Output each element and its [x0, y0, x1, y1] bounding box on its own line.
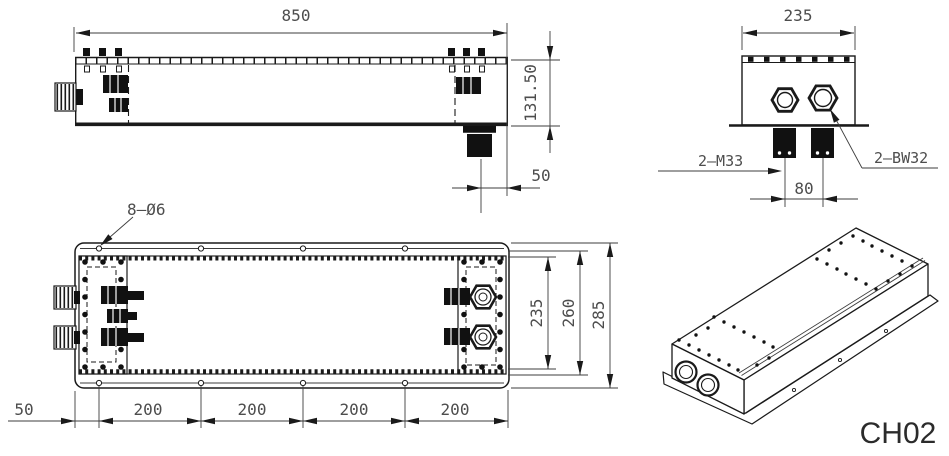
dim-131-50: 131.50 [511, 31, 560, 153]
label-bw32: 2–BW32 [874, 149, 928, 167]
dim-body-width: 260 [559, 299, 578, 328]
dim-pitch-2: 200 [238, 400, 267, 419]
dim-80: 80 [750, 179, 858, 202]
top-clips [83, 48, 485, 72]
dim-side-height: 131.50 [521, 64, 540, 122]
dim-pitch-1: 200 [134, 400, 163, 419]
engineering-drawing-page: 850 131.50 50 [0, 0, 949, 456]
dim-hole-pitch-chain: 50 200 200 200 200 [8, 386, 508, 428]
dim-pitch-3: 200 [340, 400, 369, 419]
dim-port-offset: 50 [531, 166, 550, 185]
dim-plan-widths: 235 260 285 [508, 243, 618, 388]
isometric-view [663, 228, 938, 424]
dim-bolt-field-width: 235 [527, 299, 546, 328]
gland-bw32-hex [809, 86, 837, 110]
gland-m33-hex [772, 89, 798, 112]
label-holes: 8–Ø6 [127, 200, 166, 219]
technical-drawing: 850 131.50 50 [0, 0, 949, 456]
callout-holes: 8–Ø6 [100, 200, 166, 246]
dim-edge-offset: 50 [14, 400, 33, 419]
dim-850: 850 [74, 6, 507, 127]
callout-m33: 2–M33 [658, 152, 782, 174]
bottom-connector [463, 126, 496, 213]
drawing-code: CH02 [860, 417, 937, 450]
internal-fittings [103, 75, 481, 112]
dim-50-port: 50 [452, 127, 551, 196]
label-m33: 2–M33 [698, 152, 743, 170]
dim-235-end: 235 [742, 6, 855, 50]
dim-flange-width: 285 [589, 301, 608, 330]
dim-pitch-4: 200 [441, 400, 470, 419]
side-left-connector [55, 83, 83, 111]
side-view: 850 131.50 50 [55, 6, 560, 213]
dim-end-width: 235 [784, 6, 813, 25]
plan-view: 8–Ø6 235 260 285 [8, 200, 618, 428]
end-view: 235 2–M33 2–BW32 80 [658, 6, 938, 207]
dim-gland-pitch: 80 [794, 179, 813, 198]
dim-side-length: 850 [282, 6, 311, 25]
